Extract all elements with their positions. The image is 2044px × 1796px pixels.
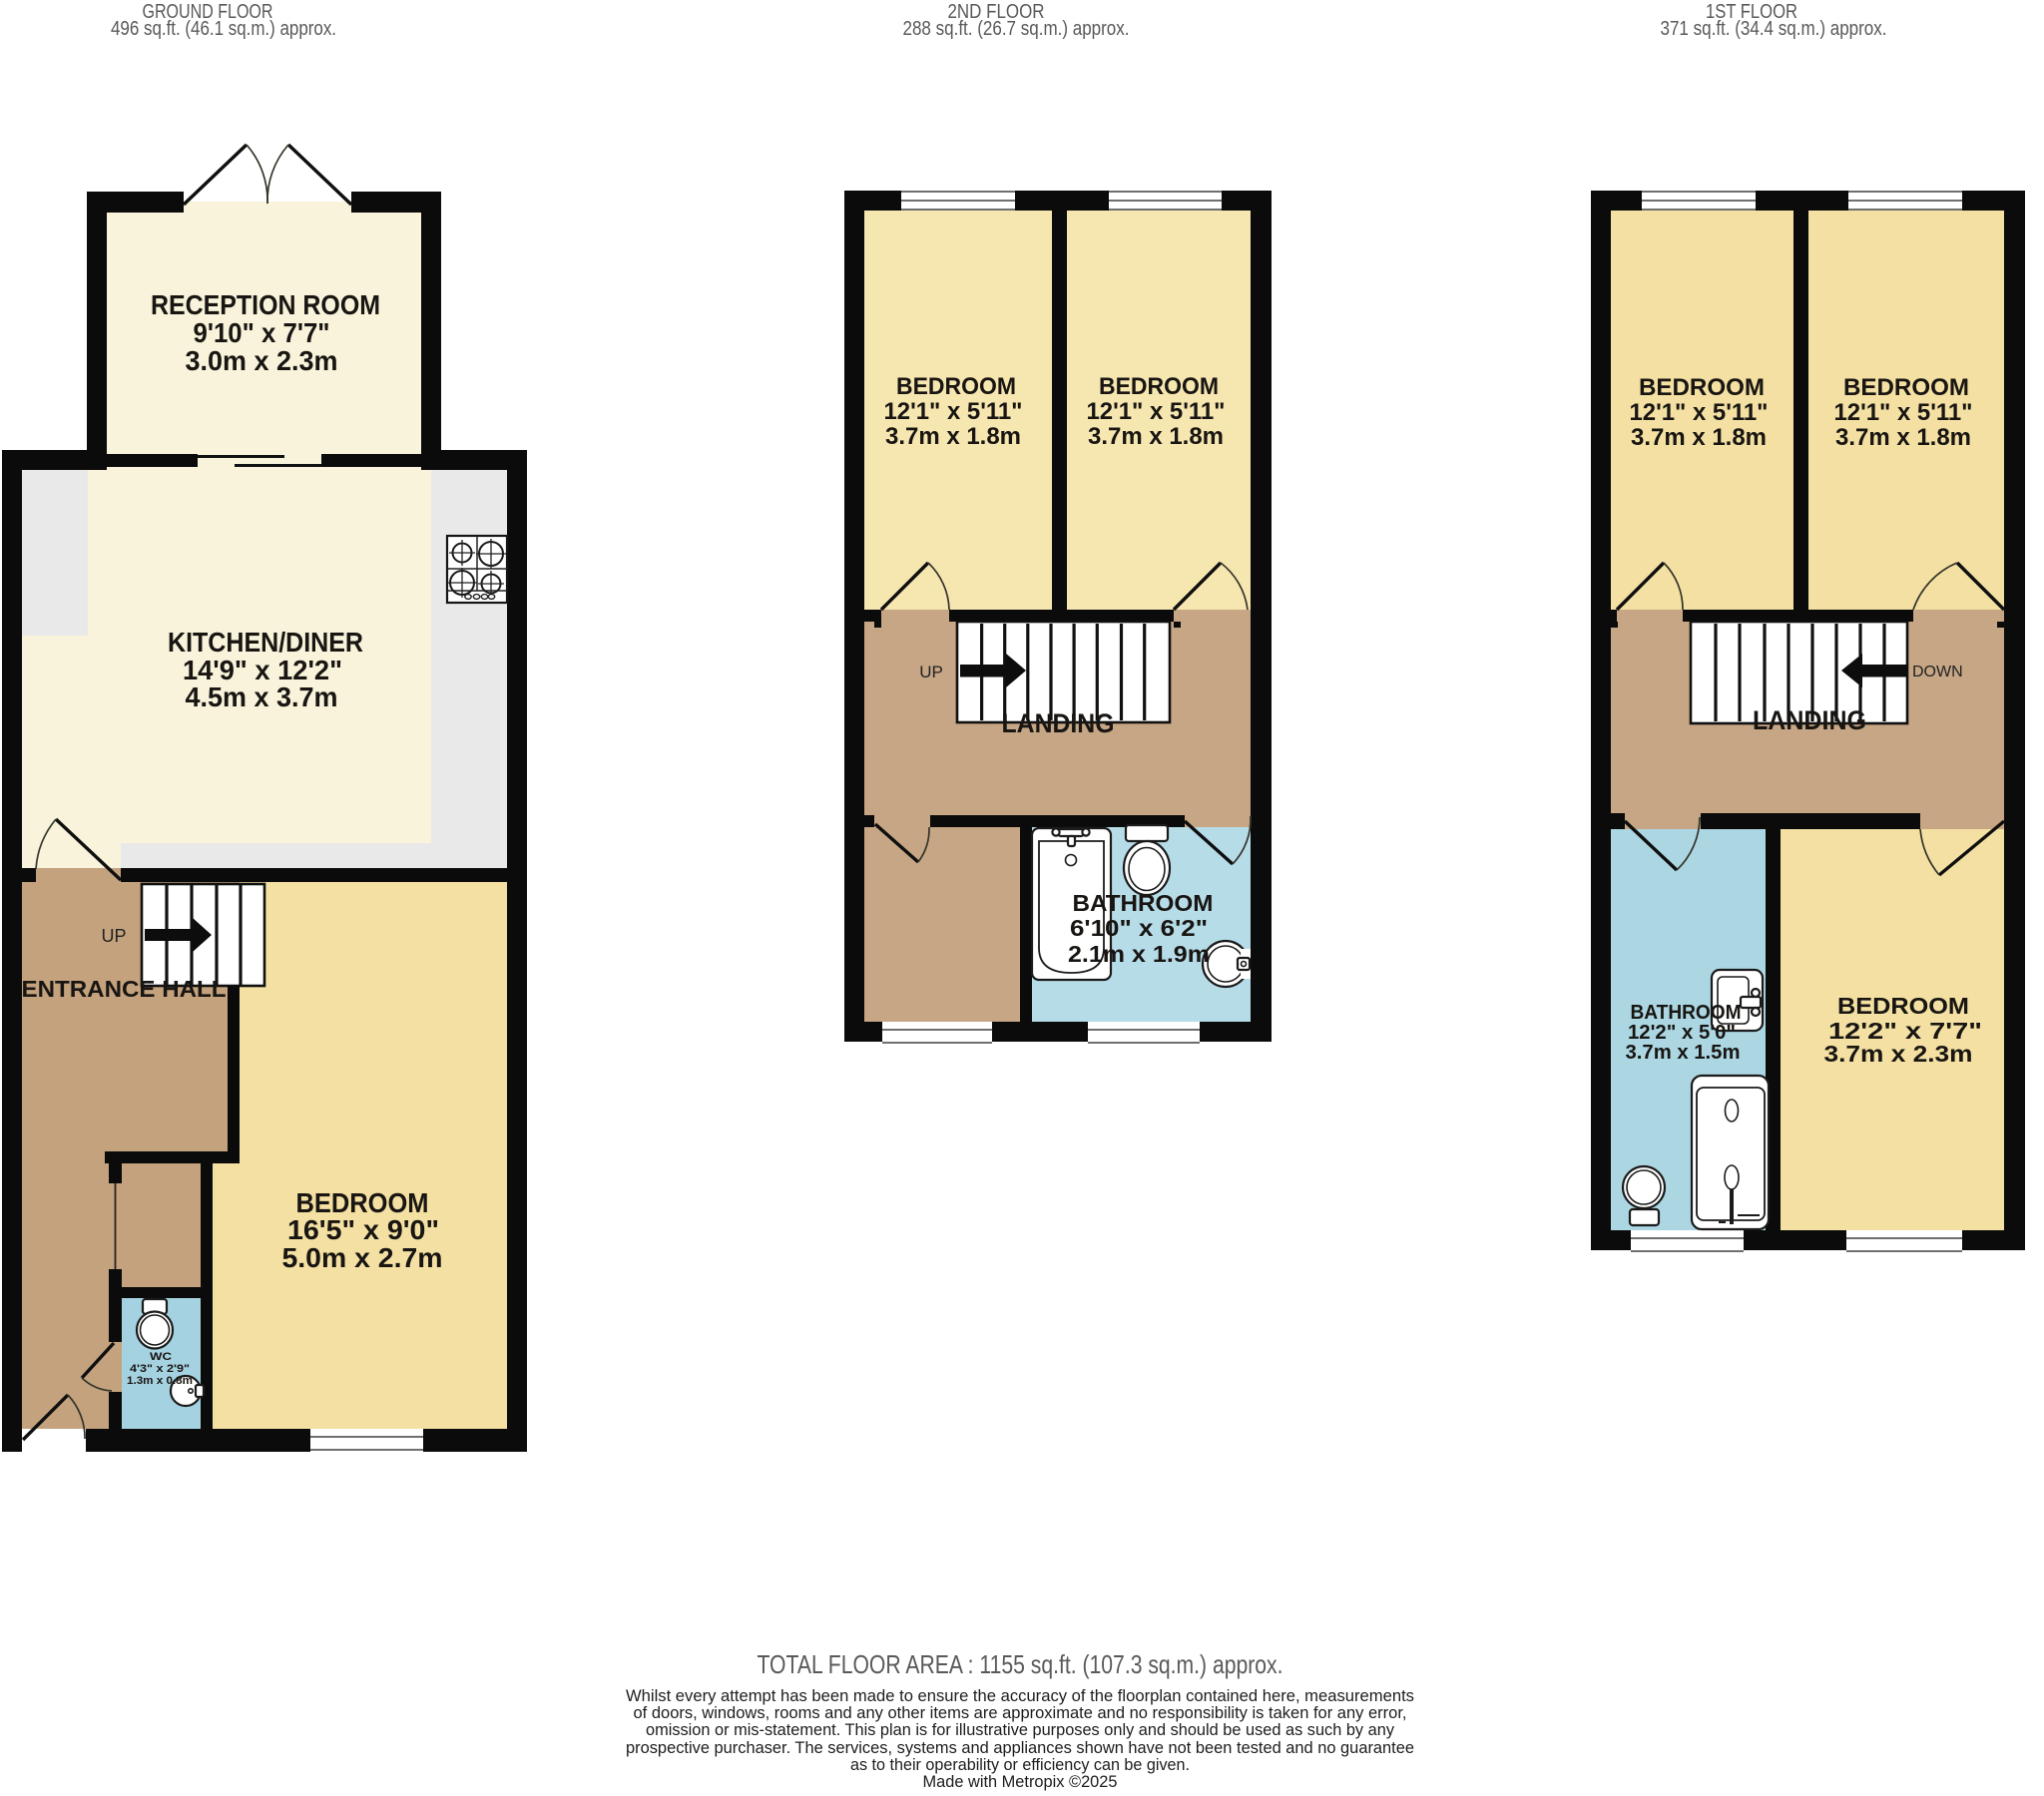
- svg-text:RECEPTION ROOM: RECEPTION ROOM: [151, 289, 380, 320]
- svg-text:ENTRANCE HALL: ENTRANCE HALL: [22, 976, 227, 1002]
- svg-text:4'3" x 2'9": 4'3" x 2'9": [130, 1363, 190, 1375]
- svg-text:4.5m x 3.7m: 4.5m x 3.7m: [186, 681, 338, 712]
- svg-text:of doors, windows, rooms and a: of doors, windows, rooms and any other i…: [634, 1704, 1407, 1722]
- svg-text:288 sq.ft. (26.7 sq.m.) approx: 288 sq.ft. (26.7 sq.m.) approx.: [903, 18, 1130, 40]
- svg-text:UP: UP: [101, 926, 126, 946]
- svg-text:BEDROOM: BEDROOM: [896, 373, 1016, 400]
- svg-text:12'1" x 5'11": 12'1" x 5'11": [1630, 399, 1769, 426]
- svg-text:6'10" x 6'2": 6'10" x 6'2": [1070, 915, 1208, 941]
- svg-text:3.7m x 1.5m: 3.7m x 1.5m: [1626, 1042, 1741, 1064]
- svg-text:UP: UP: [919, 663, 943, 681]
- svg-text:TOTAL FLOOR AREA : 1155 sq.ft.: TOTAL FLOOR AREA : 1155 sq.ft. (107.3 sq…: [758, 1649, 1283, 1679]
- svg-text:9'10" x 7'7": 9'10" x 7'7": [194, 317, 330, 348]
- svg-text:16'5" x 9'0": 16'5" x 9'0": [287, 1214, 439, 1245]
- svg-text:12'1" x 5'11": 12'1" x 5'11": [1834, 399, 1973, 426]
- svg-text:12'1" x 5'11": 12'1" x 5'11": [884, 398, 1023, 425]
- svg-text:as to their operability or eff: as to their operability or efficiency ca…: [850, 1756, 1190, 1774]
- svg-text:prospective purchaser. The ser: prospective purchaser. The services, sys…: [626, 1739, 1414, 1757]
- svg-text:3.7m x 1.8m: 3.7m x 1.8m: [1835, 424, 1971, 451]
- svg-text:BATHROOM: BATHROOM: [1073, 890, 1214, 916]
- svg-text:371 sq.ft. (34.4 sq.m.) approx: 371 sq.ft. (34.4 sq.m.) approx.: [1661, 18, 1887, 40]
- svg-text:2.1m x 1.9m: 2.1m x 1.9m: [1068, 941, 1210, 967]
- svg-text:3.7m x 1.8m: 3.7m x 1.8m: [885, 423, 1021, 450]
- svg-text:496 sq.ft. (46.1 sq.m.) approx: 496 sq.ft. (46.1 sq.m.) approx.: [111, 18, 336, 40]
- svg-text:BEDROOM: BEDROOM: [1843, 374, 1969, 401]
- svg-text:BATHROOM: BATHROOM: [1631, 1002, 1742, 1024]
- svg-text:Whilst every attempt has been: Whilst every attempt has been made to en…: [626, 1687, 1414, 1705]
- svg-text:3.7m x 1.8m: 3.7m x 1.8m: [1088, 423, 1224, 450]
- svg-text:Made with Metropix ©2025: Made with Metropix ©2025: [923, 1773, 1118, 1791]
- svg-text:3.7m x 2.3m: 3.7m x 2.3m: [1824, 1041, 1973, 1067]
- svg-text:12'1" x 5'11": 12'1" x 5'11": [1087, 398, 1226, 425]
- svg-text:LANDING: LANDING: [1002, 708, 1115, 738]
- svg-text:BEDROOM: BEDROOM: [1837, 993, 1969, 1019]
- svg-text:omission or mis-statement. Thi: omission or mis-statement. This plan is …: [646, 1721, 1395, 1739]
- svg-text:1.3m x 0.8m: 1.3m x 0.8m: [127, 1375, 193, 1387]
- svg-text:3.0m x 2.3m: 3.0m x 2.3m: [186, 345, 338, 376]
- svg-text:3.7m x 1.8m: 3.7m x 1.8m: [1631, 424, 1767, 451]
- svg-text:WC: WC: [150, 1351, 172, 1363]
- svg-text:KITCHEN/DINER: KITCHEN/DINER: [168, 627, 363, 658]
- svg-text:DOWN: DOWN: [1912, 664, 1963, 680]
- svg-text:BEDROOM: BEDROOM: [1099, 373, 1219, 400]
- svg-text:LANDING: LANDING: [1753, 705, 1866, 735]
- svg-text:5.0m x 2.7m: 5.0m x 2.7m: [282, 1242, 443, 1273]
- svg-text:12'2" x 5'0": 12'2" x 5'0": [1628, 1022, 1736, 1044]
- svg-text:BEDROOM: BEDROOM: [1639, 374, 1765, 401]
